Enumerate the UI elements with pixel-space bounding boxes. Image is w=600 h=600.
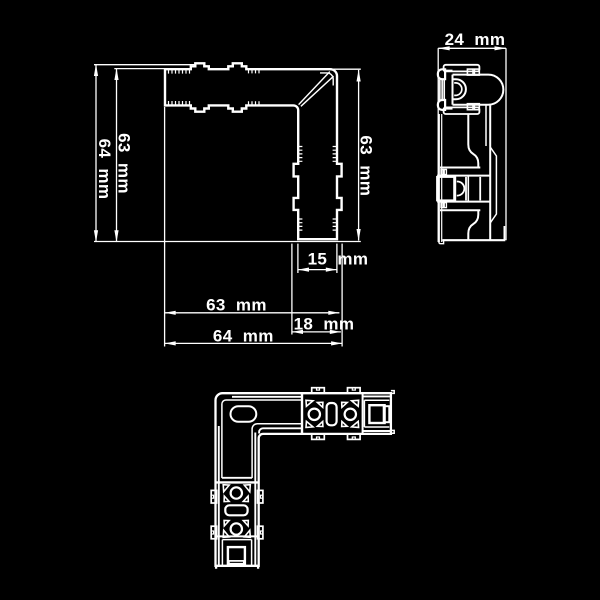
svg-text:24 mm: 24 mm — [445, 30, 506, 49]
svg-text:64 mm: 64 mm — [95, 139, 114, 200]
svg-text:63 mm: 63 mm — [356, 135, 375, 196]
svg-text:63 mm: 63 mm — [115, 133, 134, 194]
svg-text:63 mm: 63 mm — [206, 296, 267, 315]
svg-text:64 mm: 64 mm — [213, 326, 274, 345]
svg-text:18 mm: 18 mm — [294, 314, 355, 333]
svg-text:15 mm: 15 mm — [308, 250, 369, 269]
